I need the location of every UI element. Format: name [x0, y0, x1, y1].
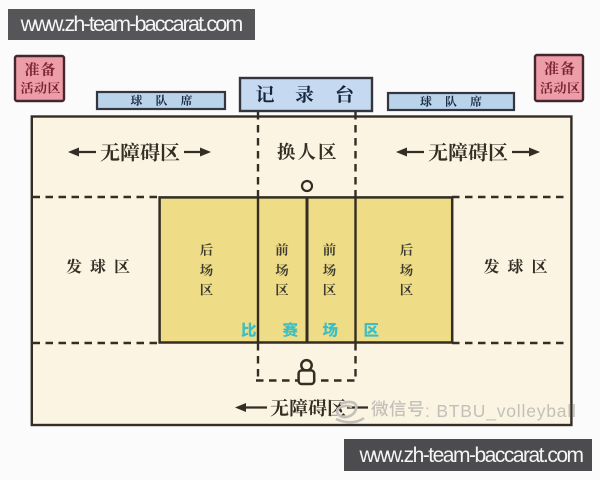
svg-text:: BTBU_volleyball: : BTBU_volleyball	[425, 401, 577, 422]
svg-text:www.zh-team-baccarat.com: www.zh-team-baccarat.com	[358, 444, 583, 467]
svg-text:www.zh-team-baccarat.com: www.zh-team-baccarat.com	[20, 12, 243, 36]
